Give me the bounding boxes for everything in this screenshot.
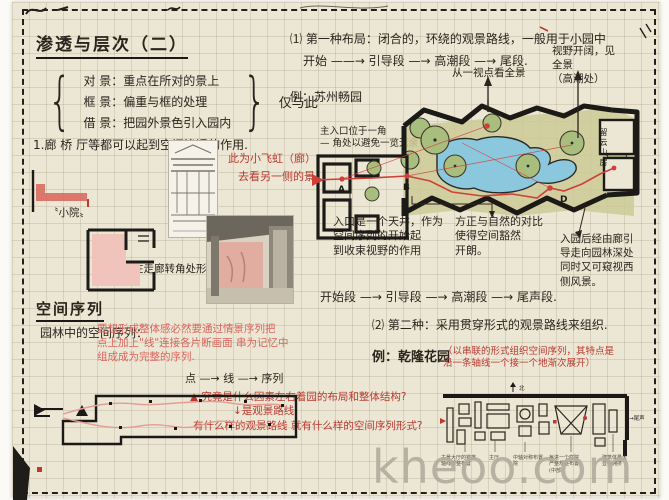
court-trees — [365, 161, 381, 201]
interior-photo-image — [206, 215, 294, 304]
red-note-view: 去看另一侧的景. — [238, 170, 319, 184]
page-title: 渗透与层次（二） — [36, 30, 188, 59]
viewpoint-note: 从一视点看全景 — [452, 66, 526, 80]
hall-name-label: 留云山房 — [598, 128, 609, 168]
red-marker-icon — [553, 420, 557, 424]
watermark: kheoo.com — [372, 440, 633, 494]
right-brace-icon: } — [243, 70, 267, 132]
question-3: 有什么样的观景路线 就有什么样的空间序列形式? — [193, 419, 422, 433]
jing-item: 借 景：把园外景色引入园内 — [83, 114, 231, 131]
changyuan-garden-plan: A B D — [312, 98, 642, 293]
north-arrow-icon — [510, 382, 516, 387]
label-a: A — [338, 185, 345, 195]
red-marker-icon — [583, 416, 587, 420]
end-label: →尾声 — [629, 414, 645, 422]
interior-photo-shapes — [207, 216, 293, 303]
type2-red-note: （以串联的形式组织空间序列，其特点是 沿一条轴线一个接一个地渐次展开） — [443, 346, 643, 371]
left-brace-icon: { — [48, 70, 72, 132]
type2-heading: ⑵ 第二种：采用贯穿形式的观景路线来组织. — [372, 316, 608, 333]
red-note-feihong: 此为小飞虹（廊） — [228, 152, 316, 166]
small-court-label: 〝小院〟 — [48, 206, 90, 220]
sequence-red-paragraph: 要想形成整体感必然要通过情景序列把 点上加上"线"连接各片断画面 串为记忆中 组… — [97, 322, 337, 365]
label-b: B — [403, 183, 410, 193]
question-2: ↓是观景路线 — [233, 404, 294, 418]
section-title-sequence: 空间序列 — [36, 298, 104, 322]
jing-item: 框 景：偏重与框的处理 — [83, 93, 231, 110]
question-1: ▲ 究竟是什么因素左右着园的布局和整体结构? — [190, 390, 407, 404]
entrance-court — [318, 156, 407, 238]
jing-item: 对 景：重点在所对的景上 — [83, 72, 231, 89]
north-label: 北 — [519, 384, 525, 392]
chain-note: 点 —→ 线 —→ 序列 — [185, 372, 283, 386]
vista-note: 视野开阔，见 全景 （高潮处） — [552, 44, 615, 87]
label-d: D — [560, 195, 567, 205]
type2-example: 例：乾隆花园 — [372, 346, 450, 365]
red-marker-icon — [440, 418, 446, 424]
jing-list: { 对 景：重点在所对的景上 框 景：偏重与框的处理 借 景：把园外景色引入园内… — [40, 70, 318, 132]
